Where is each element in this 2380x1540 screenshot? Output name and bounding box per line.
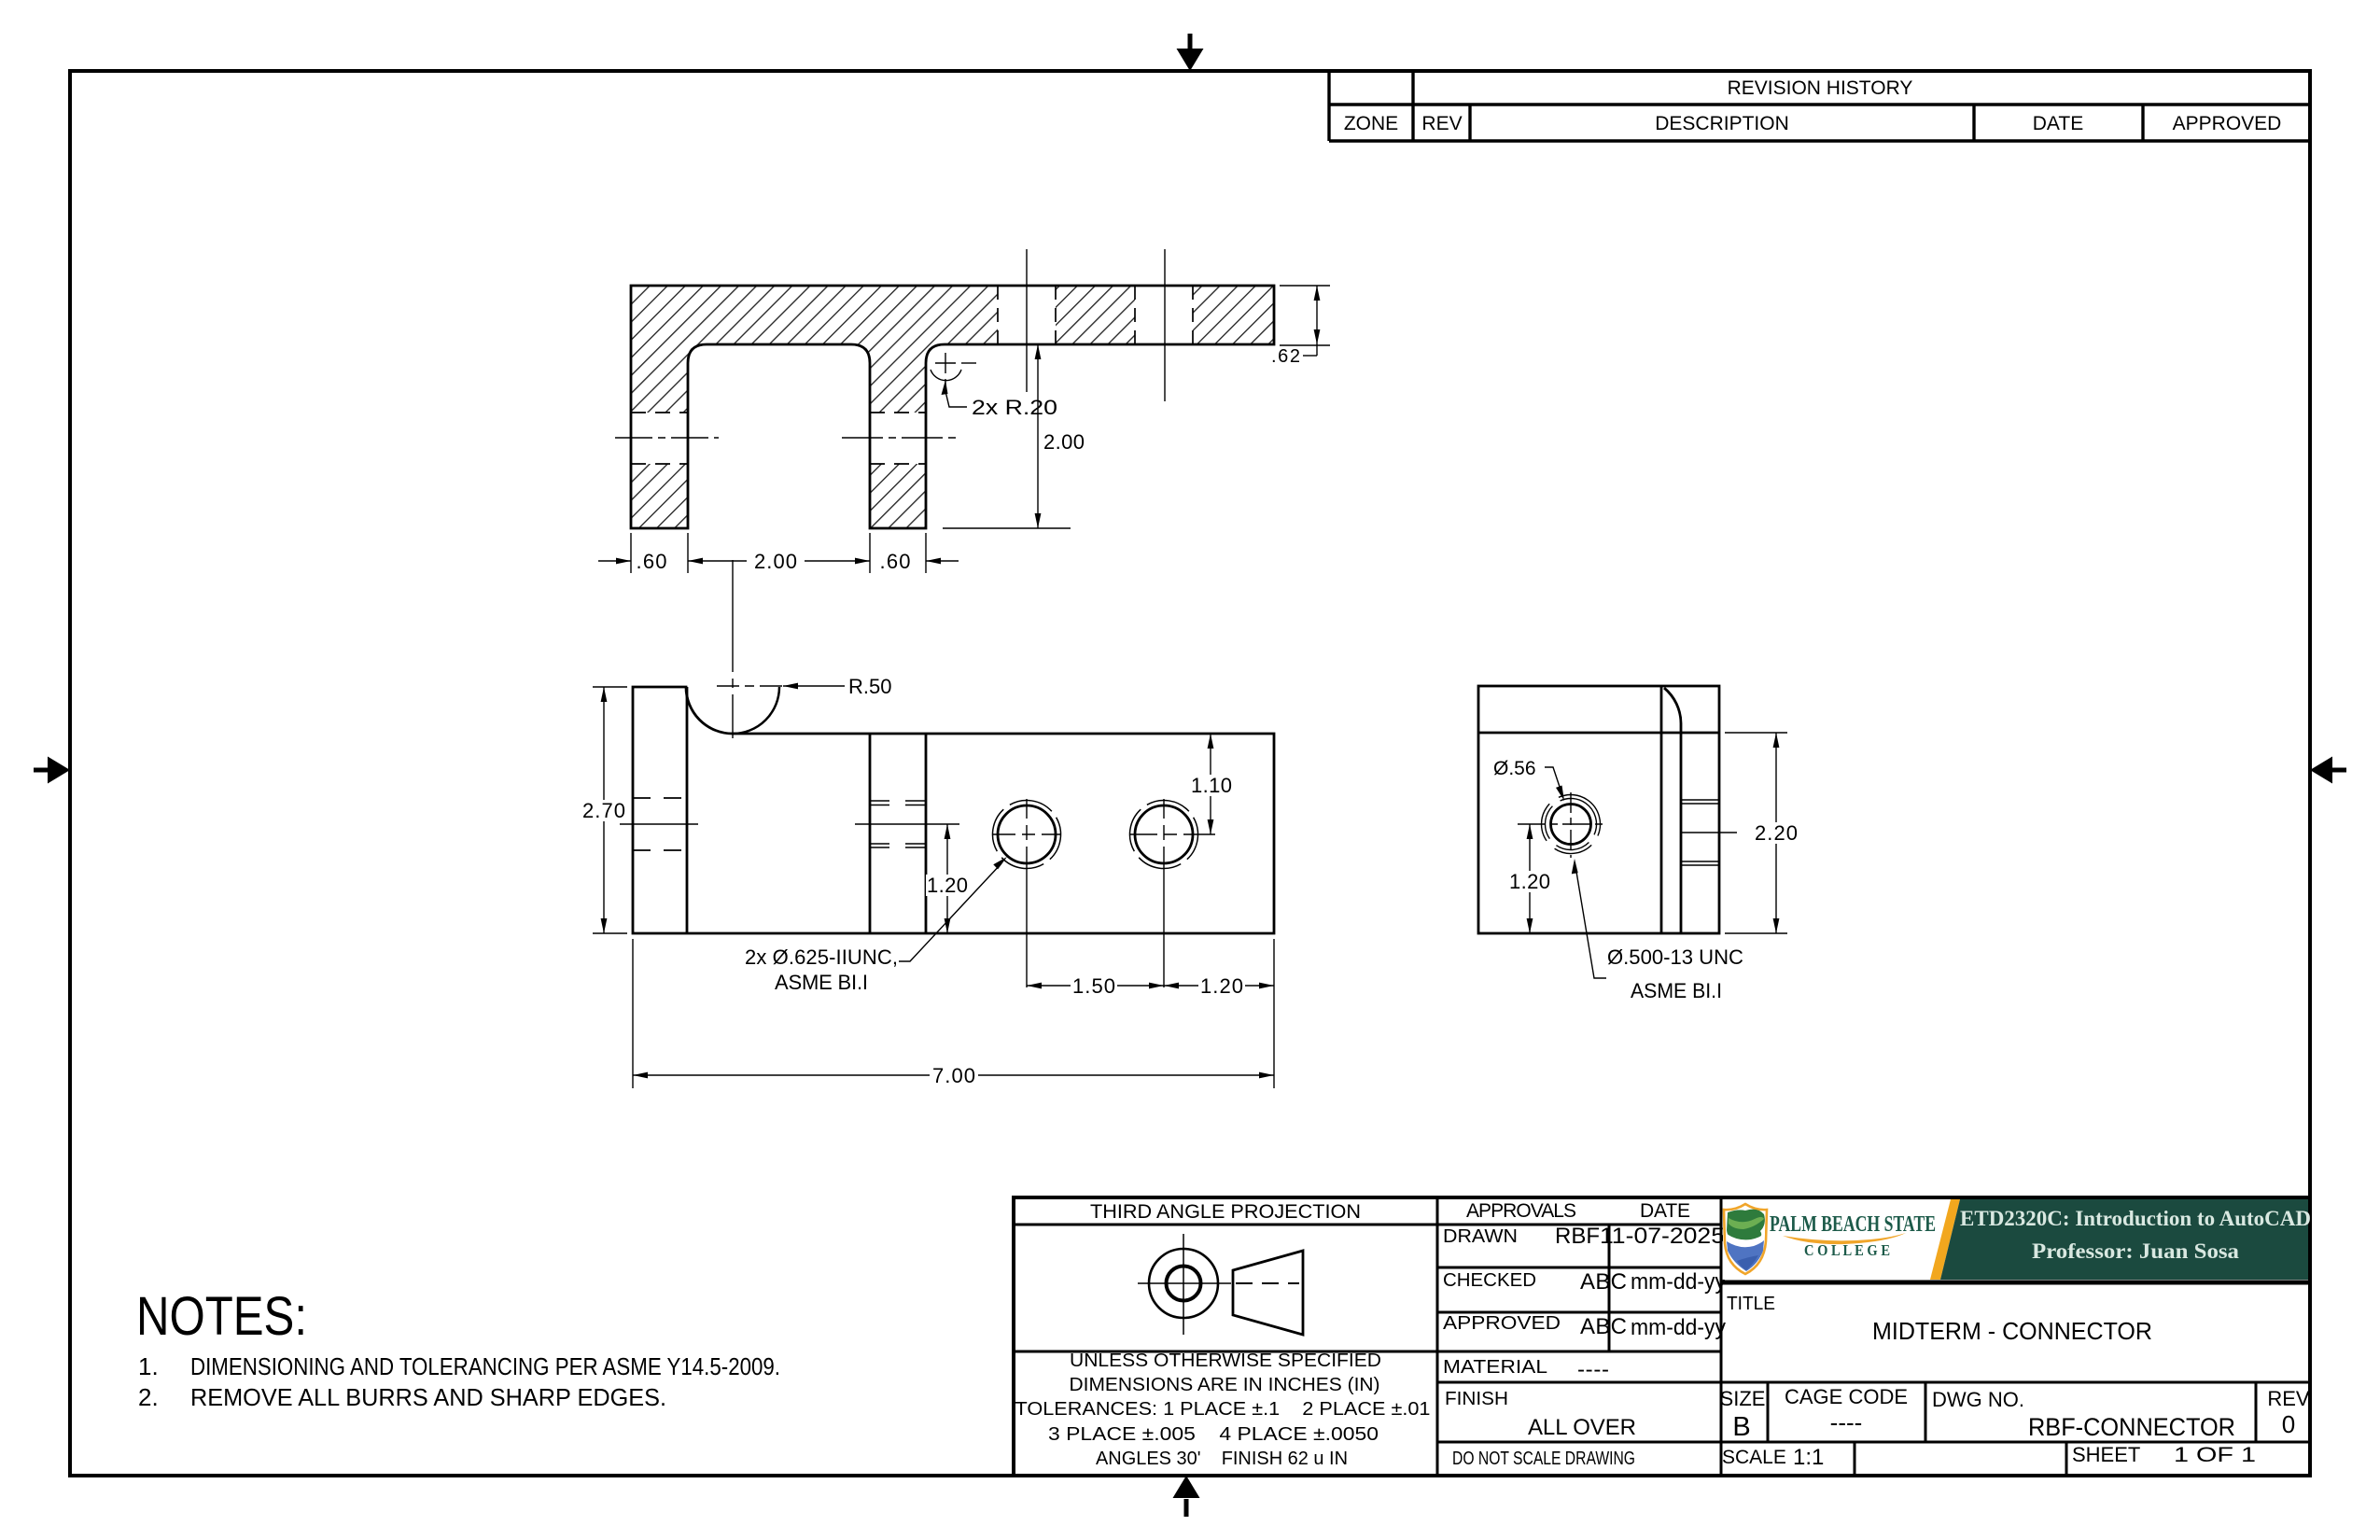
svg-text:DATE: DATE (1640, 1200, 1690, 1222)
svg-text:3 PLACE ±.005 4 PLACE ±.005: 3 PLACE ±.005 4 PLACE ±.0050 (1048, 1424, 1379, 1445)
svg-text:CAGE CODE: CAGE CODE (1785, 1385, 1908, 1408)
svg-text:DO NOT SCALE DRAWING: DO NOT SCALE DRAWING (1452, 1449, 1635, 1469)
svg-text:FINISH: FINISH (1445, 1389, 1508, 1409)
svg-text:Ø.56: Ø.56 (1493, 758, 1536, 779)
svg-text:2x Ø.625-IIUNC,: 2x Ø.625-IIUNC, (745, 945, 898, 969)
svg-text:UNLESS OTHERWISE SPECIFIED: UNLESS OTHERWISE SPECIFIED (1070, 1351, 1381, 1371)
svg-text:DRAWN: DRAWN (1443, 1226, 1518, 1247)
svg-text:RBF-CONNECTOR: RBF-CONNECTOR (2028, 1413, 2235, 1441)
svg-text:.60: .60 (880, 550, 911, 573)
svg-text:2.70: 2.70 (582, 799, 625, 822)
svg-text:1:1: 1:1 (1793, 1445, 1824, 1470)
svg-text:APPROVALS: APPROVALS (1466, 1200, 1576, 1222)
svg-text:TOLERANCES: 1 PLACE ±.1 2 P: TOLERANCES: 1 PLACE ±.1 2 PLACE ±.01 (1015, 1399, 1431, 1420)
svg-text:ABC: ABC (1580, 1269, 1627, 1295)
svg-text:DWG NO.: DWG NO. (1932, 1388, 2024, 1411)
svg-text:1.20: 1.20 (927, 874, 968, 897)
svg-text:DIMENSIONS ARE IN INCHES (IN): DIMENSIONS ARE IN INCHES (IN) (1070, 1375, 1380, 1395)
svg-text:1.10: 1.10 (1191, 774, 1232, 797)
svg-text:TITLE: TITLE (1727, 1294, 1775, 1314)
svg-text:----: ---- (1830, 1408, 1863, 1436)
svg-text:Ø.500-13 UNC: Ø.500-13 UNC (1607, 945, 1743, 969)
svg-text:1.50: 1.50 (1072, 974, 1115, 998)
svg-text:ALL OVER: ALL OVER (1528, 1415, 1636, 1440)
svg-text:ABC: ABC (1580, 1314, 1627, 1339)
svg-text:0: 0 (2282, 1410, 2295, 1438)
svg-text:DIMENSIONING AND TOLERANCING P: DIMENSIONING AND TOLERANCING PER ASME Y1… (190, 1352, 780, 1380)
svg-text:REVISION HISTORY: REVISION HISTORY (1728, 77, 1913, 99)
svg-text:Professor: Juan Sosa: Professor: Juan Sosa (2032, 1239, 2240, 1263)
svg-text:REMOVE ALL BURRS AND SHARP EDG: REMOVE ALL BURRS AND SHARP EDGES. (190, 1383, 666, 1411)
svg-text:DESCRIPTION: DESCRIPTION (1655, 113, 1789, 134)
svg-text:2.20: 2.20 (1755, 821, 1798, 845)
svg-text:.60: .60 (637, 550, 667, 573)
svg-text:ETD2320C: Introduction to Auto: ETD2320C: Introduction to AutoCAD (1960, 1207, 2311, 1230)
svg-text:1.: 1. (138, 1352, 159, 1380)
svg-text:1.20: 1.20 (1509, 870, 1550, 893)
svg-text:ZONE: ZONE (1344, 113, 1398, 134)
svg-text:MATERIAL: MATERIAL (1443, 1357, 1547, 1378)
svg-text:REV: REV (1421, 113, 1462, 134)
svg-text:----: ---- (1577, 1357, 1609, 1382)
svg-text:THIRD ANGLE PROJECTION: THIRD ANGLE PROJECTION (1090, 1201, 1361, 1223)
svg-text:R.50: R.50 (848, 675, 891, 698)
svg-text:.62: .62 (1271, 346, 1300, 367)
svg-text:ASME BI.I: ASME BI.I (1631, 979, 1722, 1002)
svg-text:SCALE: SCALE (1722, 1447, 1786, 1468)
svg-text:7.00: 7.00 (932, 1064, 975, 1087)
svg-text:SIZE: SIZE (1720, 1387, 1766, 1410)
svg-text:2.: 2. (138, 1383, 159, 1411)
svg-text:NOTES:: NOTES: (136, 1286, 307, 1347)
svg-text:APPROVED: APPROVED (2173, 113, 2282, 134)
svg-text:REV: REV (2267, 1387, 2310, 1410)
svg-text:SHEET: SHEET (2072, 1443, 2140, 1466)
svg-text:2x R.20: 2x R.20 (972, 396, 1057, 419)
svg-text:MIDTERM - CONNECTOR: MIDTERM - CONNECTOR (1872, 1317, 2152, 1345)
svg-text:1 OF 1: 1 OF 1 (2174, 1443, 2256, 1466)
svg-text:mm-dd-yy: mm-dd-yy (1631, 1315, 1726, 1340)
svg-text:CHECKED: CHECKED (1443, 1270, 1536, 1291)
svg-text:RBF: RBF (1555, 1224, 1600, 1249)
svg-text:ANGLES 30' FINISH 62 u IN: ANGLES 30' FINISH 62 u IN (1096, 1449, 1348, 1469)
svg-text:B: B (1732, 1412, 1750, 1442)
svg-text:mm-dd-yy: mm-dd-yy (1631, 1269, 1726, 1295)
svg-text:ASME BI.I: ASME BI.I (775, 971, 868, 994)
svg-text:1.20: 1.20 (1200, 974, 1243, 998)
svg-text:11-07-2025: 11-07-2025 (1600, 1224, 1725, 1249)
svg-text:2.00: 2.00 (1043, 430, 1085, 454)
svg-text:APPROVED: APPROVED (1443, 1313, 1561, 1334)
svg-text:C O L L E G E: C O L L E G E (1804, 1241, 1890, 1259)
svg-text:DATE: DATE (2033, 113, 2083, 134)
svg-text:PALM BEACH STATE: PALM BEACH STATE (1770, 1212, 1936, 1237)
svg-text:2.00: 2.00 (754, 550, 797, 573)
